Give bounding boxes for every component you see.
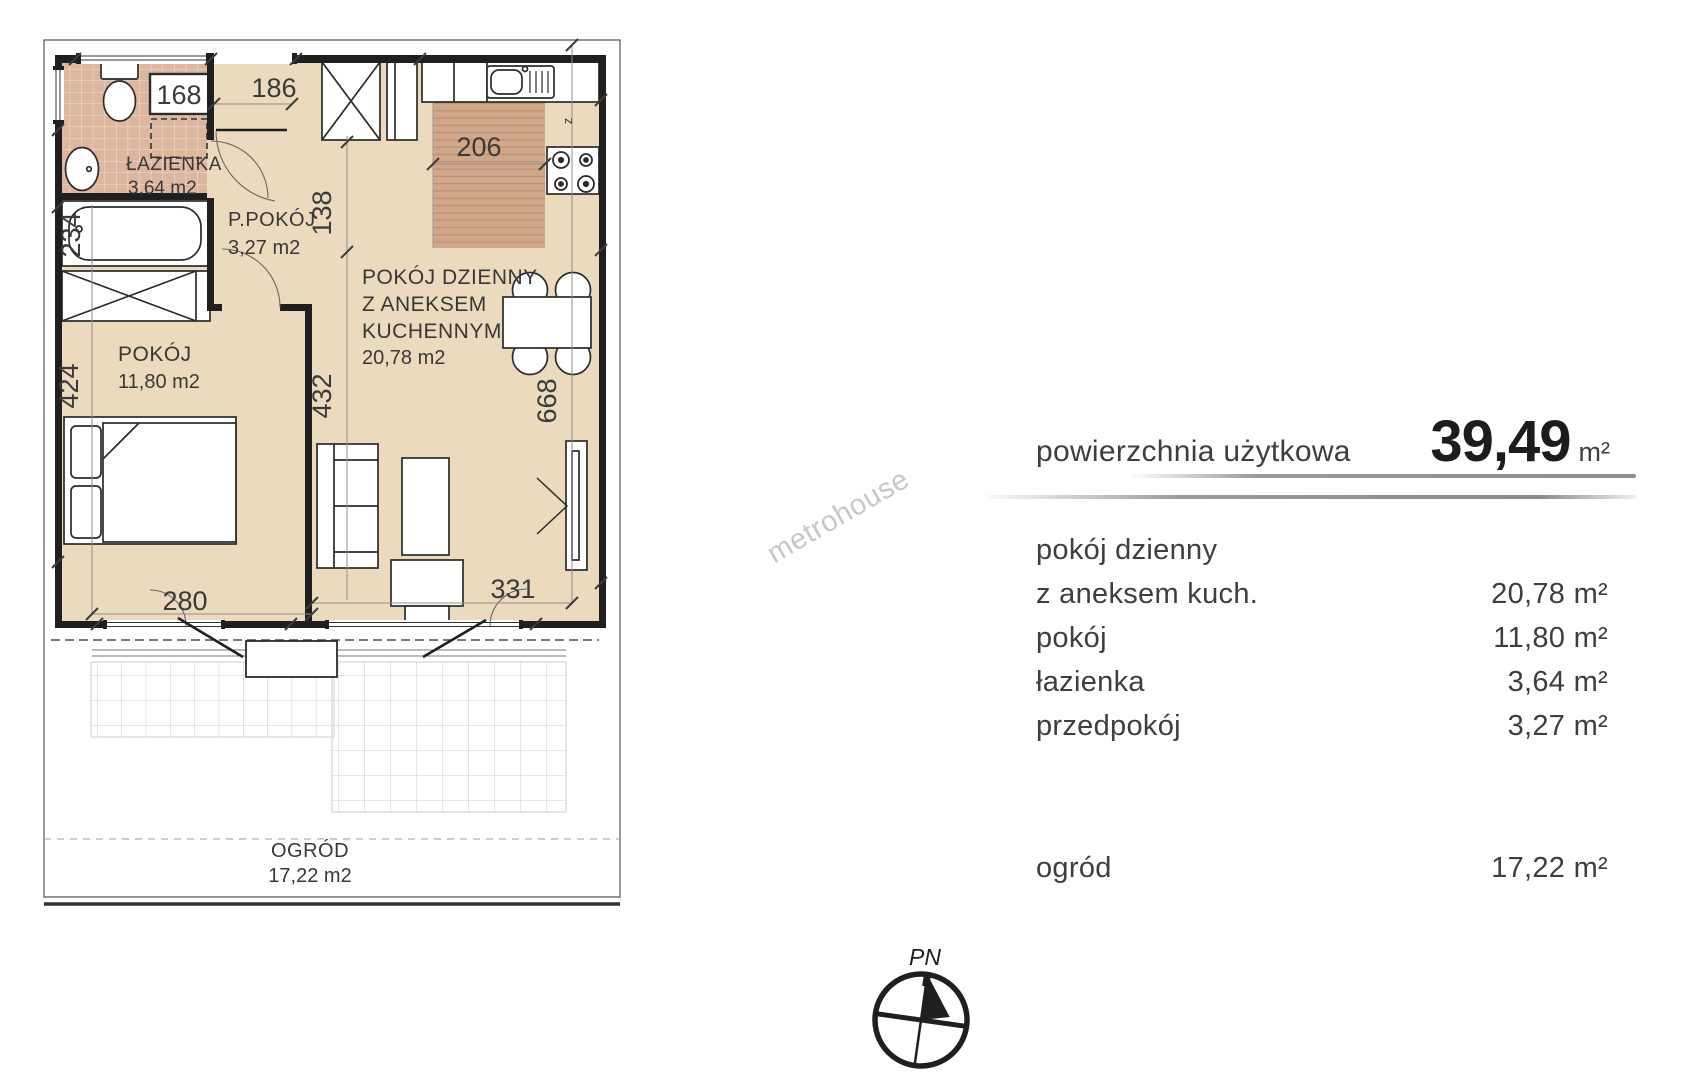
- area-row: ogród 17,22 m²: [1036, 852, 1608, 896]
- usable-area-value: 39,49: [1430, 408, 1570, 475]
- usable-area-header: powierzchnia użytkowa 39,49 m²: [1036, 408, 1610, 475]
- kitchen-sink-bowl: [491, 70, 522, 94]
- area-row-value: 3,27 m²: [1508, 710, 1608, 743]
- divider-swoosh-bottom: [986, 495, 1636, 499]
- room-area-lazienka: 3,64 m2: [128, 178, 197, 199]
- dim-668: 668: [532, 378, 562, 423]
- room-label-ogrod: OGRÓD: [271, 839, 349, 862]
- area-row-value: 11,80 m²: [1493, 622, 1608, 655]
- usable-area-unit: m²: [1579, 437, 1610, 468]
- bed-pillow: [71, 486, 101, 538]
- dim-234: 234: [56, 212, 86, 257]
- dim-331: 331: [490, 574, 535, 604]
- area-row-value: 17,22 m²: [1491, 852, 1608, 885]
- kitchen-faucet: [523, 67, 528, 72]
- tv-screen: [572, 451, 579, 560]
- area-row-label: przedpokój: [1036, 710, 1181, 743]
- dim-280: 280: [162, 586, 207, 616]
- divider-swoosh-top: [1128, 474, 1636, 478]
- floor-plan-page: ŁAZIENKA 3,64 m2 P.POKÓJ 3,27 m2 POKÓJ 1…: [0, 0, 1700, 1080]
- area-row: przedpokój 3,27 m²: [1036, 710, 1608, 754]
- area-row: łazienka 3,64 m²: [1036, 666, 1608, 710]
- terrace-grid-right: [332, 662, 566, 812]
- area-row-label: pokój dzienny: [1036, 534, 1217, 567]
- area-row-label: z aneksem kuch.: [1036, 578, 1258, 611]
- room-label-dzienny-2: Z ANEKSEM: [362, 293, 487, 316]
- coffee-table: [402, 458, 449, 555]
- dim-206: 206: [456, 132, 501, 162]
- bathroom-sink: [66, 148, 99, 191]
- area-row: z aneksem kuch. 20,78 m²: [1036, 578, 1608, 622]
- compass: PN: [850, 930, 1000, 1080]
- area-row-label: pokój: [1036, 622, 1107, 655]
- area-row: pokój dzienny: [1036, 534, 1608, 578]
- hall-closet-narrow: [387, 62, 417, 140]
- floor-plan: ŁAZIENKA 3,64 m2 P.POKÓJ 3,27 m2 POKÓJ 1…: [0, 0, 660, 950]
- room-label-pokoj: POKÓJ: [118, 343, 192, 366]
- terrace-threshold: [246, 641, 337, 677]
- dim-424: 424: [54, 363, 84, 408]
- room-label-ppokoj: P.POKÓJ: [228, 208, 316, 231]
- dining-table: [503, 297, 591, 348]
- side-table: [391, 560, 463, 606]
- area-row-label: ogród: [1036, 852, 1112, 885]
- vent-symbol: z: [560, 118, 575, 125]
- room-label-dzienny-3: KUCHENNYM: [362, 320, 502, 343]
- room-label-lazienka: ŁAZIENKA: [126, 154, 222, 175]
- dim-168: 168: [156, 80, 201, 110]
- sink-faucet: [87, 167, 92, 172]
- usable-area-label: powierzchnia użytkowa: [1036, 435, 1351, 469]
- area-row-value: 3,64 m²: [1508, 666, 1608, 699]
- kitchen-floor: [433, 102, 545, 248]
- area-row: pokój 11,80 m²: [1036, 622, 1608, 666]
- toilet-bowl: [104, 81, 136, 121]
- watermark: metrohouse: [762, 457, 926, 571]
- area-row-value: 20,78 m²: [1491, 578, 1608, 611]
- dim-186: 186: [251, 73, 296, 103]
- area-row-label: łazienka: [1036, 666, 1145, 699]
- bathtub-inner: [69, 207, 201, 260]
- room-area-ppokoj: 3,27 m2: [228, 237, 300, 259]
- dim-432: 432: [307, 373, 337, 418]
- room-area-ogrod: 17,22 m2: [268, 865, 351, 887]
- bed-blanket: [103, 423, 236, 542]
- room-area-dzienny: 20,78 m2: [362, 347, 445, 369]
- dim-138: 138: [307, 190, 337, 235]
- compass-rose: [867, 966, 975, 1074]
- toilet-tank: [101, 63, 138, 79]
- room-label-dzienny-1: POKÓJ DZIENNY: [362, 266, 538, 289]
- compass-north-label: PN: [909, 944, 941, 970]
- room-area-pokoj: 11,80 m2: [118, 371, 200, 393]
- area-table: pokój dzienny z aneksem kuch. 20,78 m² p…: [1036, 534, 1608, 896]
- bed-pillow: [71, 426, 101, 478]
